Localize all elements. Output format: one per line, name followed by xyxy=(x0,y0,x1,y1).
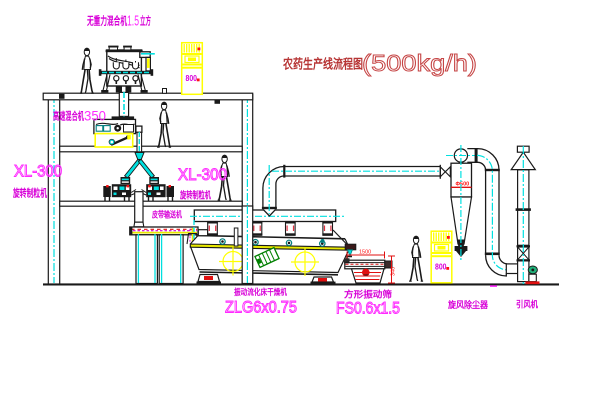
svg-text:FS0.6x1.5: FS0.6x1.5 xyxy=(336,300,400,318)
svg-text:ZLG6x0.75: ZLG6x0.75 xyxy=(225,299,297,317)
svg-text:XL-300: XL-300 xyxy=(14,163,62,181)
svg-text:皮带输送机: 皮带输送机 xyxy=(151,210,182,220)
svg-text:340: 340 xyxy=(391,267,397,276)
svg-text:振动流化床干燥机: 振动流化床干燥机 xyxy=(234,287,287,297)
svg-text:Φ500: Φ500 xyxy=(456,182,470,188)
svg-text:引风机: 引风机 xyxy=(516,299,538,310)
svg-text:无重力混合机: 无重力混合机 xyxy=(86,14,127,28)
svg-text:农药生产线流程图: 农药生产线流程图 xyxy=(282,57,363,72)
svg-text:立方: 立方 xyxy=(140,14,151,28)
svg-text:高速混合机: 高速混合机 xyxy=(53,110,84,123)
svg-text:XL-300: XL-300 xyxy=(178,166,227,184)
svg-text:方形振动筛: 方形振动筛 xyxy=(344,289,392,300)
svg-text:1500: 1500 xyxy=(359,250,371,256)
svg-text:350: 350 xyxy=(84,108,106,124)
svg-text:旋风除尘器: 旋风除尘器 xyxy=(447,299,489,310)
svg-text:旋转制粒机: 旋转制粒机 xyxy=(12,187,47,200)
svg-text:(500kg/h): (500kg/h) xyxy=(362,50,477,76)
svg-text:1.5: 1.5 xyxy=(127,13,139,30)
svg-text:旋转制粒机: 旋转制粒机 xyxy=(179,190,211,202)
